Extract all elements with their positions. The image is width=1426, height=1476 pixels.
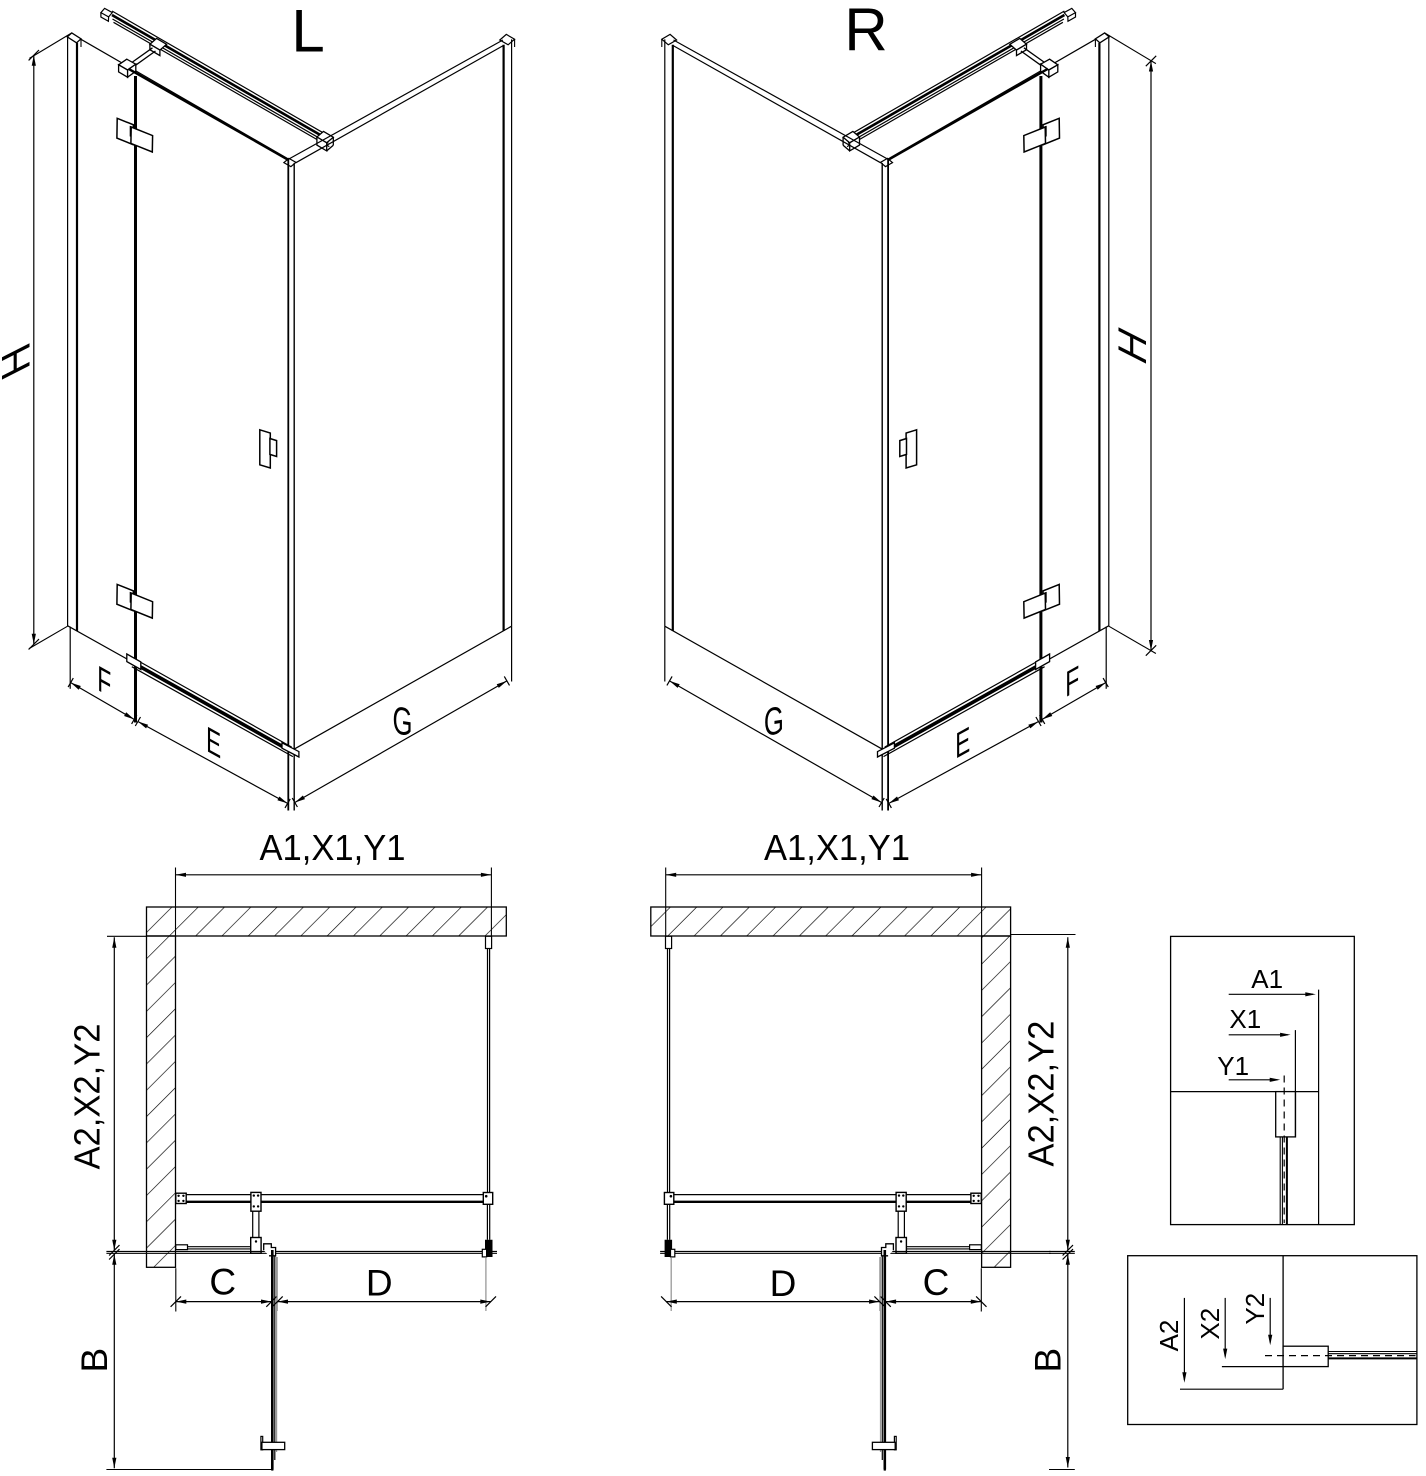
svg-text:F: F <box>97 658 111 706</box>
svg-text:A2,X2,Y2: A2,X2,Y2 <box>67 1024 108 1170</box>
svg-text:G: G <box>764 698 784 745</box>
svg-text:D: D <box>366 1263 393 1304</box>
svg-text:A1,X1,Y1: A1,X1,Y1 <box>764 827 910 868</box>
svg-text:A1,X1,Y1: A1,X1,Y1 <box>260 827 406 868</box>
svg-text:A2,X2,Y2: A2,X2,Y2 <box>1021 1021 1062 1167</box>
svg-text:R: R <box>844 0 887 63</box>
svg-text:A1: A1 <box>1251 964 1283 994</box>
svg-text:E: E <box>955 719 970 767</box>
svg-text:C: C <box>923 1262 950 1303</box>
svg-text:E: E <box>206 719 221 767</box>
svg-text:A2: A2 <box>1154 1320 1184 1352</box>
svg-text:B: B <box>1028 1348 1069 1373</box>
svg-text:Y2: Y2 <box>1240 1293 1270 1325</box>
svg-text:C: C <box>209 1262 236 1303</box>
svg-text:D: D <box>770 1263 797 1304</box>
svg-text:L: L <box>291 0 324 65</box>
svg-text:X1: X1 <box>1229 1004 1261 1034</box>
svg-text:Y1: Y1 <box>1217 1051 1249 1081</box>
svg-text:B: B <box>74 1348 115 1373</box>
svg-text:G: G <box>393 698 413 745</box>
svg-text:F: F <box>1065 658 1079 706</box>
svg-text:X2: X2 <box>1195 1308 1225 1340</box>
